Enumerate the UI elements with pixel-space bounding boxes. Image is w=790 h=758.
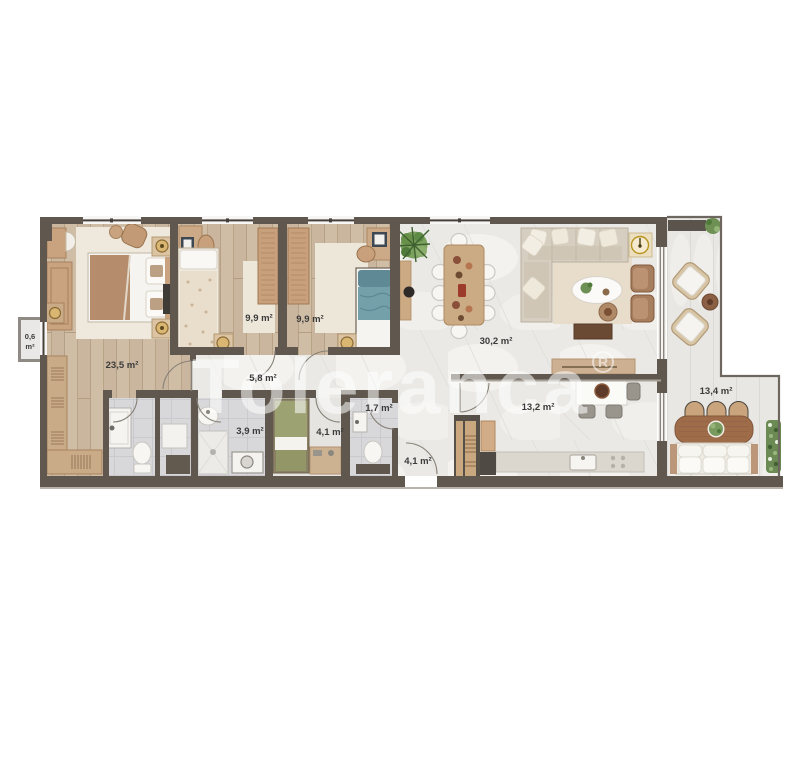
svg-text:3,9 m²: 3,9 m² <box>236 426 263 437</box>
svg-text:13,2 m²: 13,2 m² <box>522 402 555 413</box>
svg-text:4,1 m²: 4,1 m² <box>316 427 343 438</box>
svg-text:0,6: 0,6 <box>25 332 35 341</box>
svg-text:13,4 m²: 13,4 m² <box>700 386 733 397</box>
svg-text:9,9 m²: 9,9 m² <box>245 313 272 324</box>
svg-text:9,9 m²: 9,9 m² <box>296 314 323 325</box>
svg-text:23,5 m²: 23,5 m² <box>106 360 139 371</box>
svg-text:m²: m² <box>25 342 35 351</box>
svg-text:30,2 m²: 30,2 m² <box>480 336 513 347</box>
svg-text:5,8 m²: 5,8 m² <box>249 373 276 384</box>
svg-text:Toleranca: Toleranca <box>192 342 591 430</box>
svg-text:R: R <box>598 354 608 370</box>
svg-text:1,7 m²: 1,7 m² <box>365 403 392 414</box>
svg-text:4,1 m²: 4,1 m² <box>404 456 431 467</box>
